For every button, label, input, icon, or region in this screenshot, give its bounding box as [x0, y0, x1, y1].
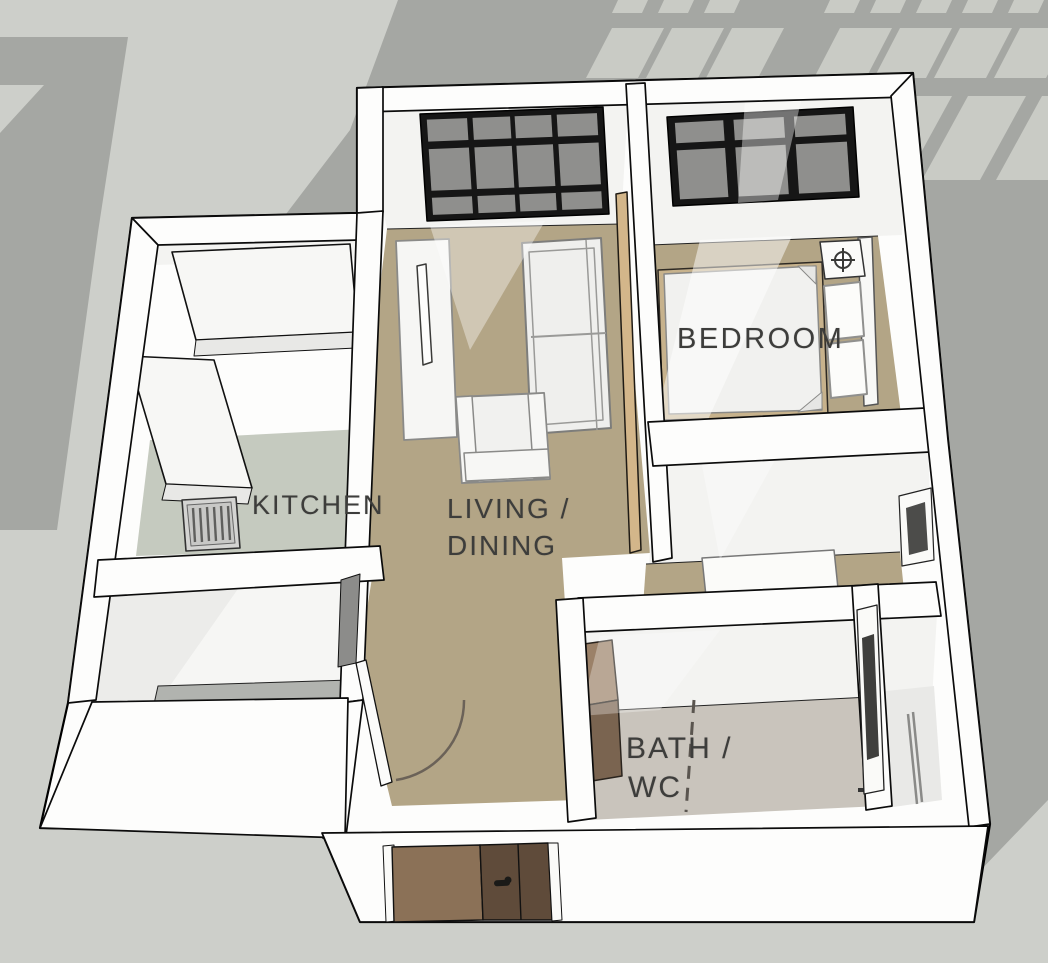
light-slash — [658, 0, 694, 13]
bedroom-window-pane — [796, 142, 850, 194]
living-window-pane — [519, 193, 556, 212]
kitchen-back-counter — [172, 244, 358, 340]
front-door-panel-light — [392, 845, 483, 922]
nightstand — [820, 240, 865, 279]
living-window-pane — [558, 143, 601, 186]
door-hardware-mark-2 — [858, 788, 864, 792]
light-slash — [824, 0, 860, 13]
living-window — [420, 107, 609, 221]
living-window-pane — [516, 144, 555, 187]
light-slash — [612, 0, 648, 13]
floor-plan-render — [0, 0, 1048, 963]
living-dining-label-line2: DINING — [447, 530, 557, 562]
bath-wc-label-line2: WC — [628, 771, 682, 805]
light-slash — [962, 0, 998, 13]
bedroom-window-pane — [675, 120, 725, 143]
light-slash — [916, 0, 952, 13]
living-window-pane — [515, 115, 553, 138]
front-door-panel-dark — [480, 843, 552, 920]
wall-left-front-face — [40, 698, 348, 838]
hall-niche-window-glass — [906, 502, 928, 555]
bath-wc-label-line1: BATH / — [626, 732, 732, 766]
living-window-pane — [473, 116, 512, 139]
door-opening-shadow — [338, 574, 360, 667]
living-window-pane — [561, 191, 602, 210]
living-window-pane — [557, 113, 598, 136]
light-slash — [870, 0, 906, 13]
kitchen-label: KITCHEN — [252, 490, 385, 521]
light-slash — [704, 0, 740, 13]
floor-plan-scene: KITCHEN LIVING / DINING BEDROOM BATH / W… — [0, 0, 1048, 963]
living-window-pane — [429, 148, 472, 191]
lower-left-room — [92, 578, 372, 704]
wall-living-left-step — [357, 87, 383, 213]
armchair-backrest — [464, 449, 550, 481]
living-window-pane — [474, 146, 514, 189]
light-slash — [1008, 0, 1044, 13]
wall-kitchen-back — [132, 213, 360, 245]
living-window-pane — [477, 195, 515, 214]
bedroom-label: BEDROOM — [677, 323, 844, 356]
front-door — [383, 843, 562, 922]
kitchen-sink — [182, 497, 240, 551]
hallway — [643, 448, 934, 606]
living-window-pane — [427, 118, 469, 141]
living-dining-label-line1: LIVING / — [447, 493, 570, 525]
living-window-pane — [432, 196, 473, 215]
hall-wall-face — [649, 448, 932, 568]
armchair — [456, 393, 550, 483]
bedroom-window-pane — [794, 114, 847, 137]
bedroom-window-pane — [677, 148, 729, 199]
